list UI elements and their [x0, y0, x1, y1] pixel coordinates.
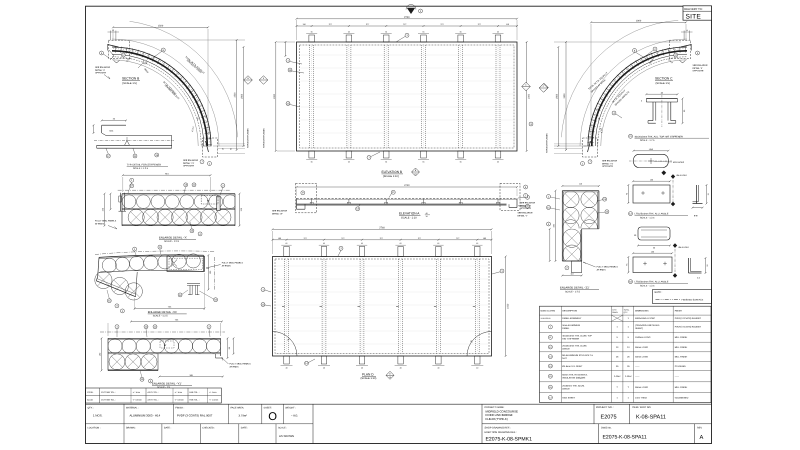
svg-text:+/- 1mm: +/- 1mm [209, 391, 217, 394]
svg-text:DETAIL 'Y1': DETAIL 'Y1' [602, 162, 614, 165]
svg-text:65: 65 [423, 30, 425, 33]
svg-text:DIMENSIONS: DIMENSIONS [635, 310, 649, 313]
svg-text:FULLY SEAL PANELS: FULLY SEAL PANELS [230, 363, 252, 366]
svg-text:FAB TOL. :: FAB TOL. : [190, 391, 200, 394]
svg-text:10: 10 [426, 215, 428, 218]
svg-text:[SCALE 1:10]: [SCALE 1:10] [383, 175, 399, 178]
svg-text:110: 110 [579, 183, 582, 186]
svg-text:CHECKED :: CHECKED : [202, 426, 215, 429]
svg-text:65: 65 [286, 242, 288, 245]
svg-text:65: 65 [497, 160, 499, 163]
svg-text:ANGLE: ANGLE [562, 347, 570, 350]
svg-text:O: O [268, 411, 277, 423]
svg-text:DETAIL 'X': DETAIL 'X' [95, 69, 106, 72]
svg-text:65: 65 [323, 242, 325, 245]
svg-text:40: 40 [437, 366, 439, 369]
svg-text:SEE ENLARGE: SEE ENLARGE [602, 160, 618, 163]
svg-text:377: 377 [456, 237, 459, 240]
svg-text:30: 30 [113, 118, 115, 121]
svg-text:65: 65 [348, 30, 350, 33]
svg-text:DETAIL 'V': DETAIL 'V' [518, 214, 529, 217]
svg-text:ELEVATION B: ELEVATION B [382, 170, 403, 174]
svg-text:1500: 1500 [234, 92, 237, 98]
svg-text:+/- 0.5mm: +/- 0.5mm [133, 399, 142, 402]
svg-text:25: 25 [634, 234, 636, 237]
svg-text:ENLARGE DETAIL -'X': ENLARGE DETAIL -'X' [159, 235, 187, 239]
svg-text:TYP. DETAIL FOR STIFFENER: TYP. DETAIL FOR STIFFENER [127, 164, 162, 167]
svg-text:75: 75 [625, 264, 628, 266]
svg-text:SECTION B: SECTION B [122, 77, 139, 81]
svg-text:40mm LONG: 40mm LONG [635, 355, 648, 358]
svg-text:OPPOSITE: OPPOSITE [183, 165, 194, 168]
svg-text:6300x1650+H STEP: 6300x1650+H STEP [635, 317, 656, 320]
svg-text:+/- 1.5mm: +/- 1.5mm [209, 399, 218, 402]
svg-text:DATE :: DATE : [164, 426, 172, 429]
svg-text:~ KG.: ~ KG. [291, 414, 298, 418]
svg-text:SEE ENLARGE: SEE ENLARGE [272, 210, 288, 213]
svg-text:STRAIGHT PLANES: STRAIGHT PLANES [546, 133, 549, 153]
svg-text:MILL FINISH: MILL FINISH [675, 336, 688, 339]
svg-text:OPPOSITE: OPPOSITE [520, 207, 531, 210]
svg-text:1000: 1000 [636, 20, 642, 23]
svg-text:FINISHED SURFACE: FINISHED SURFACE [682, 298, 704, 301]
svg-text:FLB-08 (TYPE-K): FLB-08 (TYPE-K) [486, 417, 508, 421]
svg-text:ASSY TOL. :: ASSY TOL. : [148, 399, 160, 402]
svg-text:SEE ENLARGE: SEE ENLARGE [520, 202, 536, 205]
svg-text:25x25x3mm THK. ALUM.: 25x25x3mm THK. ALUM. [562, 344, 587, 347]
svg-text:ITEM / PART NO.: ITEM / PART NO. [632, 406, 652, 409]
svg-text:SITE: SITE [686, 14, 702, 21]
svg-text:MATERIAL :: MATERIAL : [126, 406, 139, 409]
svg-text:15: 15 [686, 29, 688, 32]
svg-text:SCALE - 1:2.5: SCALE - 1:2.5 [640, 216, 655, 219]
svg-text:40: 40 [400, 366, 402, 369]
svg-text:CUTTING TOL. :: CUTTING TOL. : [101, 399, 116, 402]
svg-text:110: 110 [570, 273, 573, 276]
svg-text:150: 150 [650, 178, 653, 181]
svg-text:ALUM.: ALUM. [87, 399, 94, 402]
svg-text:ENLARGE DETAIL -'Z1': ENLARGE DETAIL -'Z1' [560, 286, 590, 290]
svg-text:2740: 2740 [404, 16, 410, 19]
svg-text:SEE ENLARGE: SEE ENLARGE [518, 212, 534, 215]
svg-text:STEEL: STEEL [87, 391, 94, 394]
svg-text:1500: 1500 [563, 93, 566, 99]
svg-text:PANEL: PANEL [612, 311, 618, 314]
svg-text:DETAIL 'X': DETAIL 'X' [693, 67, 704, 70]
svg-text:PLAN D: PLAN D [362, 372, 374, 376]
svg-text:80: 80 [228, 347, 231, 349]
svg-text:1563: 1563 [241, 93, 244, 99]
svg-text:SECTION C: SECTION C [655, 77, 673, 81]
svg-text:65: 65 [385, 160, 387, 163]
svg-text:2.43m²: 2.43m² [625, 375, 632, 378]
svg-text:368: 368 [190, 374, 193, 377]
svg-text:K-08-SPA11: K-08-SPA11 [636, 414, 666, 420]
svg-text:2740: 2740 [379, 227, 385, 230]
svg-text:25: 25 [707, 193, 710, 195]
svg-text:POLISHED: POLISHED [675, 365, 686, 368]
svg-text:HAT STIFFENER: HAT STIFFENER [562, 338, 579, 341]
svg-text:(SCALE 1:10): (SCALE 1:10) [361, 377, 377, 380]
svg-text:65: 65 [437, 242, 439, 245]
svg-text:+/- 1mm: +/- 1mm [133, 391, 141, 394]
svg-text:[SCALE 1:5]: [SCALE 1:5] [123, 82, 137, 85]
svg-text:3: 3 [641, 100, 642, 103]
svg-text:AT ENDS: AT ENDS [95, 222, 105, 225]
svg-text:65: 65 [361, 242, 363, 245]
svg-text:DELIVERY TO :: DELIVERY TO : [684, 8, 703, 11]
svg-text:REV: REV [697, 426, 702, 429]
svg-text:DWG No.: DWG No. [601, 426, 612, 429]
svg-text:ENLARGE DETAIL -'Y1': ENLARGE DETAIL -'Y1' [152, 382, 182, 386]
svg-text:SCALE - 1:7.5: SCALE - 1:7.5 [640, 139, 655, 142]
svg-text:65: 65 [311, 160, 313, 163]
svg-text:Ø4.8 HOLE: Ø4.8 HOLE [679, 246, 690, 249]
svg-text:75: 75 [625, 193, 628, 195]
svg-text:SCALE - 1:5: SCALE - 1:5 [157, 386, 171, 389]
svg-text:K-08-SPA11: K-08-SPA11 [541, 317, 551, 320]
svg-text:AT ENDS: AT ENDS [230, 365, 240, 368]
svg-text:(7004x2025 UNFOLDED: (7004x2025 UNFOLDED [635, 324, 660, 327]
svg-text:377: 377 [478, 23, 481, 26]
svg-text:DETAIL 'Y1': DETAIL 'Y1' [183, 162, 195, 165]
svg-text:65: 65 [423, 160, 425, 163]
svg-text:Ø4.8 HOLE: Ø4.8 HOLE [677, 174, 688, 177]
svg-text:377: 377 [380, 237, 383, 240]
svg-text:LOCATION :: LOCATION : [88, 426, 101, 429]
svg-text:377: 377 [441, 23, 444, 26]
svg-text:MARK NO./ITEM: MARK NO./ITEM [541, 310, 556, 313]
svg-text:DETAIL 'W': DETAIL 'W' [272, 212, 283, 215]
svg-text:STRAIGHT PLANES: STRAIGHT PLANES [247, 128, 250, 148]
svg-text:ANGLE: ANGLE [562, 387, 570, 390]
svg-text:PROJECT NO. :: PROJECT NO. : [596, 406, 614, 409]
svg-text:SCALE - 1:2.5: SCALE - 1:2.5 [640, 284, 655, 287]
svg-text:190: 190 [483, 237, 486, 240]
svg-text:DETAIL 'Z1': DETAIL 'Z1' [520, 204, 532, 207]
svg-text:NOTE :: NOTE : [655, 291, 663, 294]
svg-text:FACE AREA:: FACE AREA: [231, 406, 245, 409]
svg-text:ALUMINIUM 3003 - H14: ALUMINIUM 3003 - H14 [130, 414, 161, 418]
svg-text:25: 25 [222, 148, 225, 150]
svg-text:2.43m²: 2.43m² [614, 375, 621, 378]
svg-text:OPPOSITE: OPPOSITE [95, 72, 106, 75]
svg-text:65: 65 [476, 242, 478, 245]
svg-text:3.79m²: 3.79m² [239, 414, 248, 418]
svg-text:1040: 1040 [649, 148, 653, 151]
svg-text:40: 40 [286, 366, 288, 369]
svg-text:PVDF(3 COATS) RAL9007: PVDF(3 COATS) RAL9007 [675, 326, 702, 329]
svg-text:GALVANISED: GALVANISED [675, 396, 689, 399]
svg-text:DATE :: DATE : [241, 426, 249, 429]
svg-text:E-E: E-E [694, 215, 698, 218]
svg-text:PANEL ASSEMBLY: PANEL ASSEMBLY [562, 317, 582, 320]
svg-text:150: 150 [651, 250, 654, 253]
svg-text:QTY. :: QTY. : [88, 406, 95, 409]
svg-text:OPPOSITE: OPPOSITE [602, 165, 613, 168]
svg-text:SCALE - 1:2.5: SCALE - 1:2.5 [153, 315, 169, 318]
svg-text:1000: 1000 [528, 93, 531, 99]
svg-text:NUT: NUT [562, 357, 567, 360]
svg-text:40: 40 [323, 366, 325, 369]
svg-text:25x50mm THK. ALUM.: 25x50mm THK. ALUM. [562, 384, 585, 387]
svg-text:ASSY TOL. :: ASSY TOL. : [148, 391, 160, 394]
svg-text:A: A [700, 435, 704, 441]
svg-text:DRAWN :: DRAWN : [126, 426, 136, 429]
svg-text:40: 40 [361, 366, 363, 369]
svg-text:L75x50x4mm THK. ALU. ANGLE: L75x50x4mm THK. ALU. ANGLE [635, 281, 669, 284]
svg-text:FINISH: FINISH [675, 310, 682, 313]
svg-text:1mm THICK: 1mm THICK [635, 396, 648, 399]
svg-text:STRAIGHT PLANES: STRAIGHT PLANES [263, 128, 266, 148]
svg-text:3mm ALUMINIUM: 3mm ALUMINIUM [562, 324, 580, 327]
svg-text:40x20x3mm THK. ALU. TOP HAT ST: 40x20x3mm THK. ALU. TOP HAT STIFFENER [635, 135, 684, 138]
svg-text:FAB TOL. :: FAB TOL. : [190, 399, 200, 402]
svg-text:50mm LONG: 50mm LONG [635, 386, 648, 389]
svg-text:Ø4.8mm S.S. RIVET: Ø4.8mm S.S. RIVET [562, 365, 583, 368]
svg-text:MILL FINISH: MILL FINISH [675, 355, 688, 358]
svg-text:L75x25x4mm THK. ALU. ANGLE: L75x25x4mm THK. ALU. ANGLE [635, 213, 669, 216]
svg-text:SHEET): SHEET) [635, 327, 643, 330]
svg-text:65: 65 [460, 160, 462, 163]
svg-text:1 NOS.: 1 NOS. [93, 414, 103, 418]
svg-text:50mm THK. ROCKWOOL: 50mm THK. ROCKWOOL [562, 374, 588, 377]
svg-text:65: 65 [497, 30, 499, 33]
svg-text:110: 110 [303, 23, 306, 26]
svg-text:GAG SHEET: GAG SHEET [562, 396, 575, 399]
svg-text:377: 377 [366, 23, 369, 26]
svg-text:+/- 0.5mm: +/- 0.5mm [175, 399, 184, 402]
svg-text:SCALE = 1:2.5: SCALE = 1:2.5 [133, 167, 149, 170]
svg-text:50mm LONG: 50mm LONG [635, 346, 648, 349]
svg-text:FULLY SEAL PANELS: FULLY SEAL PANELS [222, 262, 244, 265]
svg-text:40: 40 [426, 212, 428, 215]
svg-text:110: 110 [506, 23, 509, 26]
svg-text:65: 65 [348, 160, 350, 163]
svg-text:SEE ENLARGE: SEE ENLARGE [183, 159, 199, 162]
svg-text:SEE ENLARGE: SEE ENLARGE [693, 64, 709, 67]
svg-text:2740: 2740 [404, 184, 410, 187]
svg-text:SCALE - 1:7.5: SCALE - 1:7.5 [565, 290, 581, 293]
svg-text:377: 377 [418, 237, 421, 240]
svg-text:INSULATION (50kg/M³): INSULATION (50kg/M³) [562, 377, 585, 380]
svg-text:PANEL: PANEL [562, 327, 570, 330]
svg-text:65: 65 [460, 30, 462, 33]
svg-text:1500: 1500 [158, 25, 164, 28]
svg-text:377: 377 [329, 23, 332, 26]
svg-text:40: 40 [476, 366, 478, 369]
svg-text:SCALE - 1:2.5: SCALE - 1:2.5 [164, 240, 180, 243]
svg-text:65: 65 [385, 30, 387, 33]
svg-text:SCALE :: SCALE : [278, 426, 287, 429]
svg-text:65: 65 [311, 30, 313, 33]
svg-text:1000: 1000 [273, 93, 276, 99]
svg-text:40x20x3mm THK. ALUM. TOP: 40x20x3mm THK. ALUM. TOP [562, 335, 592, 338]
svg-text:M5 ALUMINIUM STUD BOLT &: M5 ALUMINIUM STUD BOLT & [562, 354, 593, 357]
svg-text:MILL FINISH: MILL FINISH [675, 346, 688, 349]
svg-text:MILL FINISH: MILL FINISH [675, 386, 688, 389]
svg-text:PVDF (3 COATS) RAL 9007: PVDF (3 COATS) RAL 9007 [177, 414, 213, 418]
svg-text:E2075: E2075 [601, 414, 617, 420]
svg-text:AS SHOWN: AS SHOWN [279, 434, 294, 438]
svg-text:FINISH :: FINISH : [175, 406, 184, 409]
svg-text:377: 377 [341, 237, 344, 240]
svg-text:WEIGHT :: WEIGHT : [285, 406, 296, 409]
svg-text:PVDF(3 COATS) RAL9007: PVDF(3 COATS) RAL9007 [675, 317, 702, 320]
svg-text:ENLARGE DETAIL -'X1': ENLARGE DETAIL -'X1' [148, 310, 178, 314]
svg-text:FULLY SEAL PANELS: FULLY SEAL PANELS [95, 220, 117, 223]
svg-text:SHEET:: SHEET: [264, 406, 273, 409]
svg-text:1563: 1563 [555, 93, 558, 99]
svg-text:OPPOSITE: OPPOSITE [693, 70, 704, 73]
svg-text:SEE ENLARGE: SEE ENLARGE [95, 66, 111, 69]
svg-text:50: 50 [706, 265, 709, 267]
svg-text:190: 190 [278, 237, 281, 240]
svg-text:377: 377 [304, 237, 307, 240]
svg-text:(SCALE 1:5): (SCALE 1:5) [656, 82, 671, 85]
svg-text:QTY.: QTY. [624, 311, 629, 314]
svg-text:SCALE - 1:10: SCALE - 1:10 [401, 216, 417, 219]
svg-text:Ø4.8 HOLE: Ø4.8 HOLE [673, 161, 685, 164]
svg-text:377: 377 [403, 23, 406, 26]
svg-text:5/16: 5/16 [110, 130, 114, 133]
svg-text:E2075-K-08-SPA11: E2075-K-08-SPA11 [603, 435, 647, 441]
svg-text:ERECTION DRAWING REF. :: ERECTION DRAWING REF. : [485, 431, 518, 434]
svg-text:CUTTING TOL. :: CUTTING TOL. : [101, 391, 116, 394]
svg-text:AT ENDS: AT ENDS [597, 268, 607, 271]
svg-text:AT ENDS: AT ENDS [222, 264, 232, 267]
svg-text:1000: 1000 [507, 303, 510, 309]
svg-text:1040mm LONG: 1040mm LONG [635, 336, 651, 339]
svg-text:FULLY SEAL PANELS: FULLY SEAL PANELS [597, 266, 619, 269]
svg-text:DESCRIPTION: DESCRIPTION [563, 310, 578, 313]
svg-text:ELEVATION A: ELEVATION A [399, 212, 420, 216]
svg-text:+/- 1mm: +/- 1mm [175, 391, 183, 394]
svg-text:E2075-K-08-SPMK1: E2075-K-08-SPMK1 [486, 436, 533, 442]
svg-text:50: 50 [653, 246, 655, 249]
svg-text:65: 65 [400, 242, 402, 245]
svg-text:SHOP DRAWING REF. :: SHOP DRAWING REF. : [485, 426, 512, 429]
svg-text:50: 50 [230, 148, 233, 150]
